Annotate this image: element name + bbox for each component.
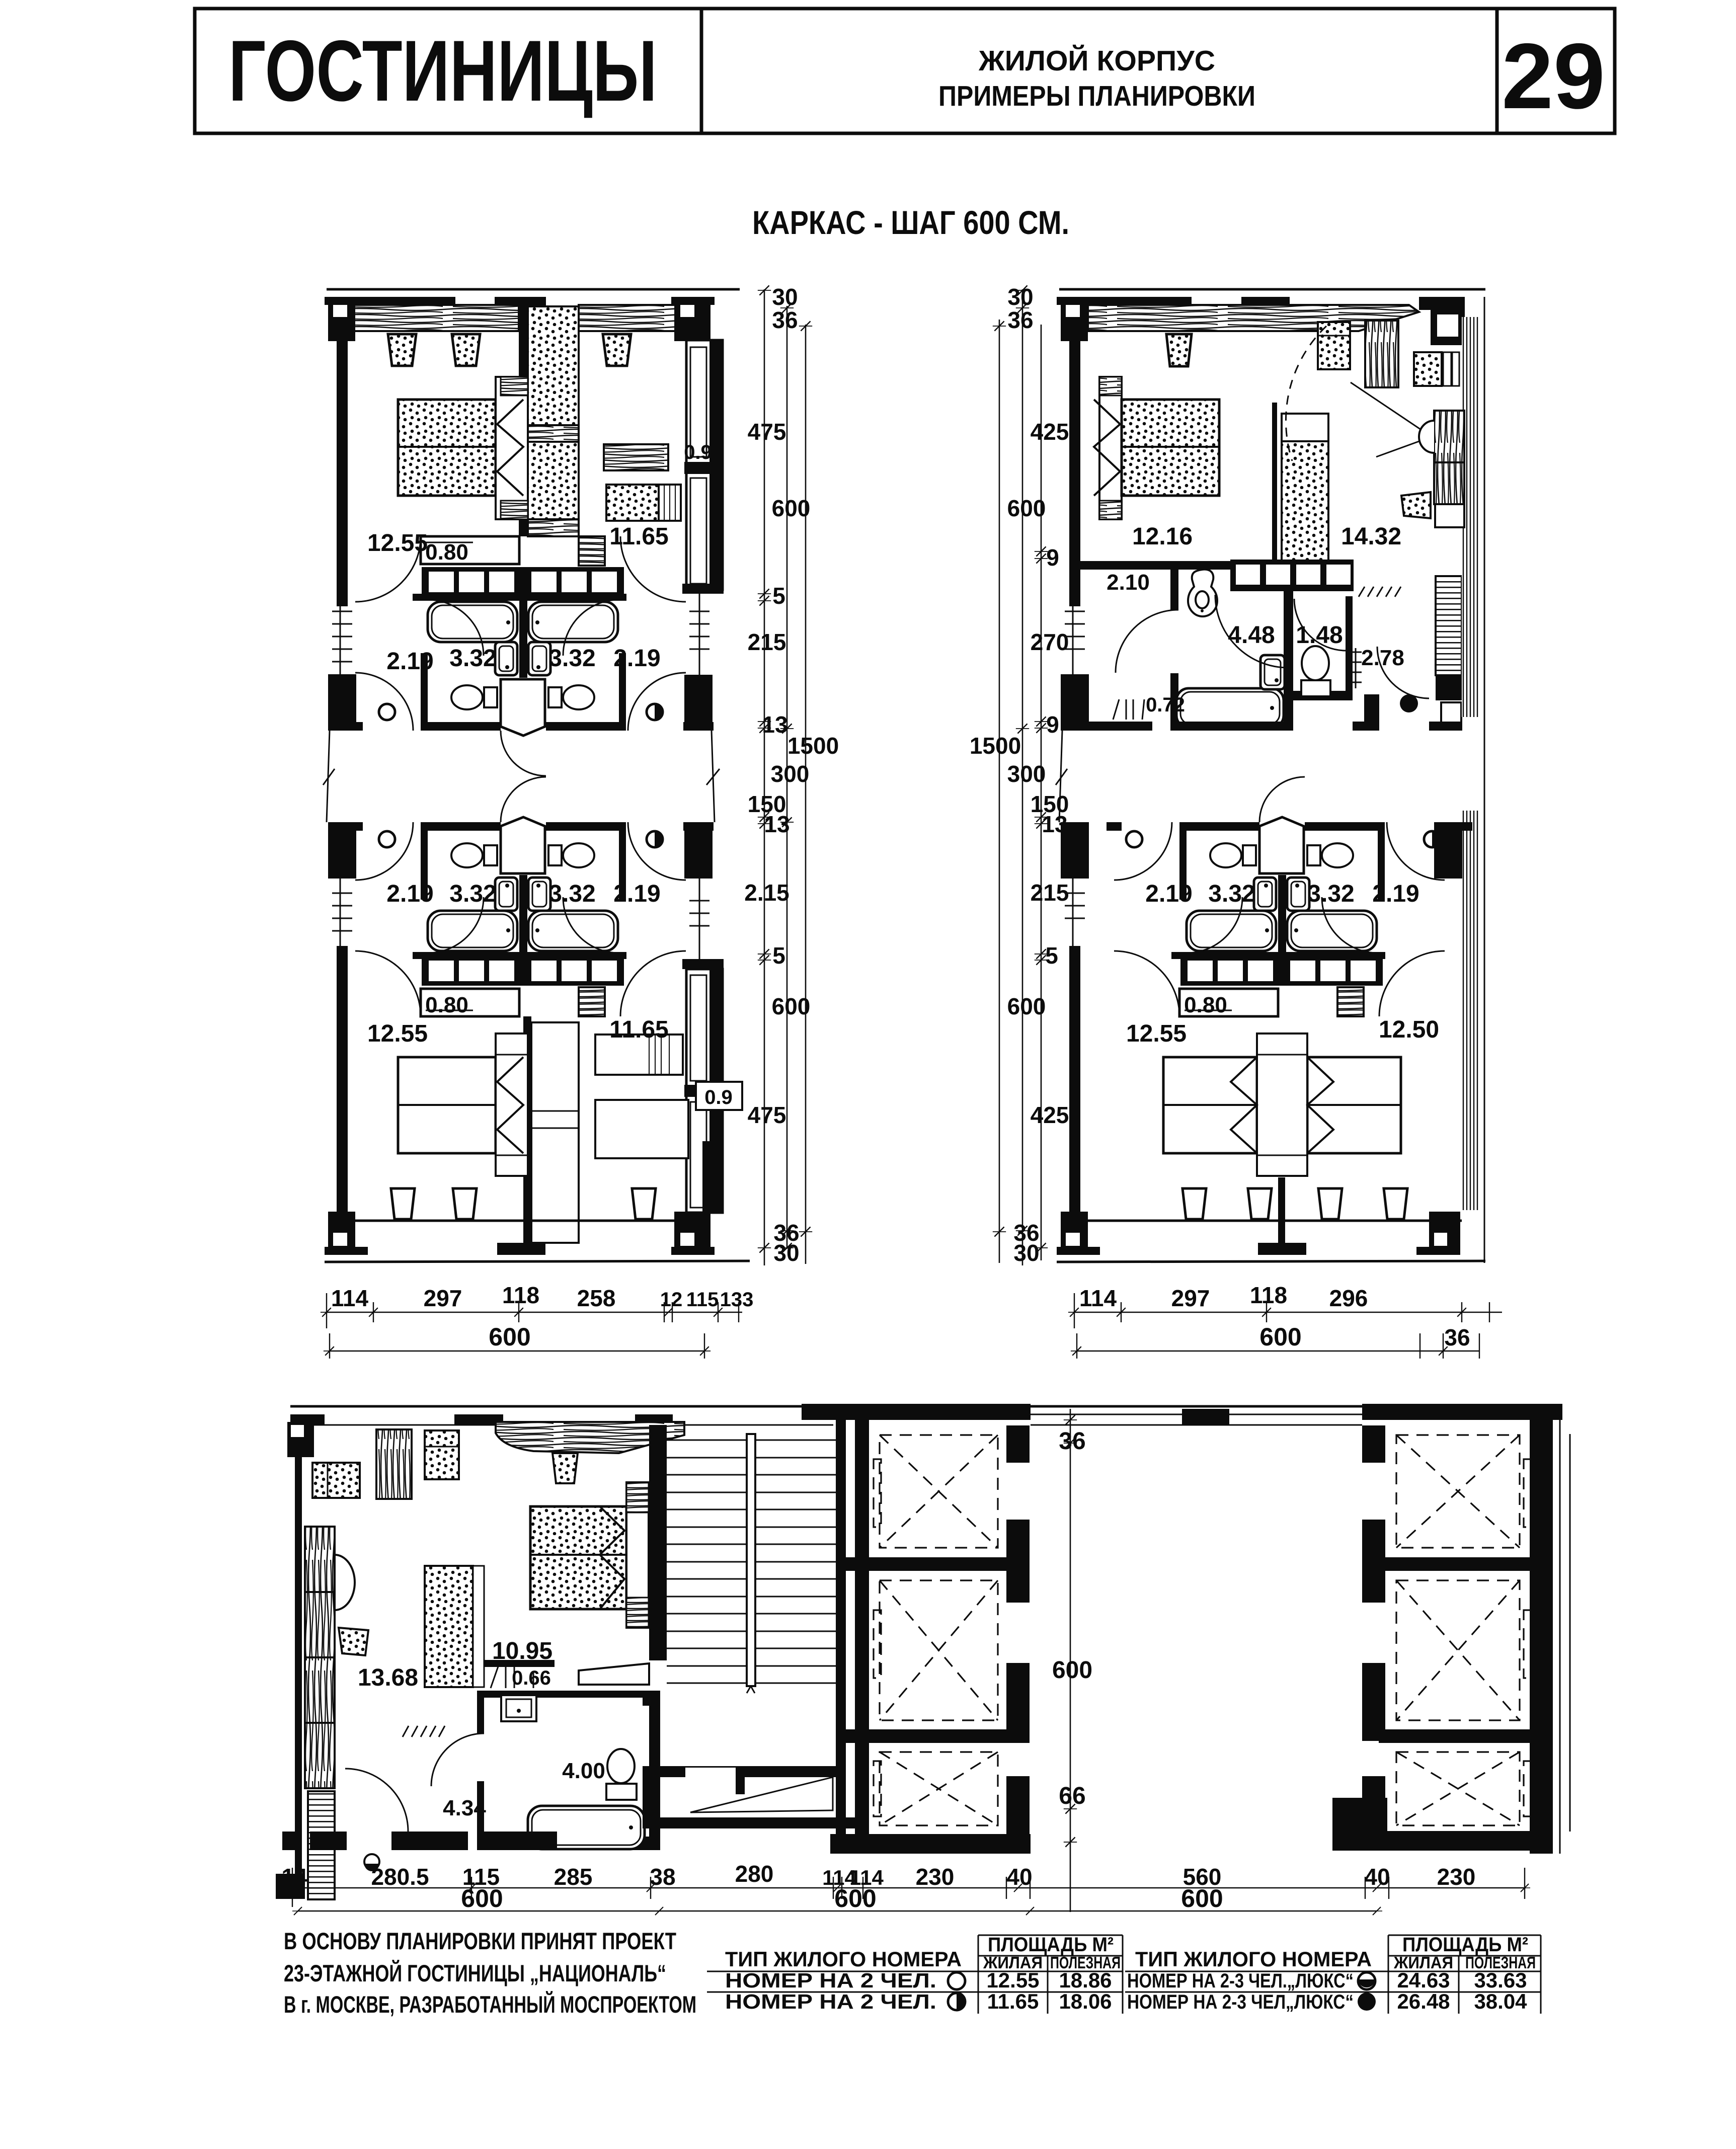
svg-text:2.78: 2.78 [1361,646,1404,670]
svg-text:ГОСТИНИЦЫ: ГОСТИНИЦЫ [228,23,657,119]
svg-text:38.04: 38.04 [1474,1989,1527,2013]
svg-text:297: 297 [424,1285,462,1311]
svg-text:ПРИМЕРЫ ПЛАНИРОВКИ: ПРИМЕРЫ ПЛАНИРОВКИ [938,80,1255,112]
svg-text:5: 5 [772,583,785,609]
svg-text:ЖИЛОЙ КОРПУС: ЖИЛОЙ КОРПУС [978,44,1215,77]
svg-text:36: 36 [1007,307,1033,333]
svg-text:3.32: 3.32 [1208,881,1255,907]
svg-text:40: 40 [1364,1864,1390,1890]
svg-text:280.5: 280.5 [371,1864,429,1890]
svg-text:3.32: 3.32 [1307,881,1354,907]
svg-text:230: 230 [1437,1864,1476,1890]
svg-text:36: 36 [772,307,798,333]
svg-text:0.9: 0.9 [684,441,712,463]
svg-text:600: 600 [489,1323,530,1351]
svg-text:600: 600 [772,993,811,1019]
svg-text:297: 297 [1171,1285,1210,1311]
svg-text:4.48: 4.48 [1228,622,1275,649]
svg-text:1500: 1500 [787,733,839,759]
svg-text:230: 230 [916,1864,955,1890]
svg-text:13.68: 13.68 [358,1664,418,1691]
svg-text:115: 115 [686,1289,719,1311]
svg-text:118: 118 [502,1282,539,1308]
svg-text:30: 30 [772,284,798,310]
svg-text:38: 38 [650,1864,675,1890]
svg-text:215: 215 [748,629,786,655]
svg-text:12.55: 12.55 [1126,1020,1187,1047]
svg-text:В г. МОСКВЕ, РАЗРАБОТАННЫЙ МОС: В г. МОСКВЕ, РАЗРАБОТАННЫЙ МОСПРОЕКТОМ [284,1991,696,2018]
svg-text:12.55: 12.55 [367,530,428,556]
svg-text:11.65: 11.65 [609,523,668,550]
svg-text:280: 280 [735,1861,774,1887]
svg-text:ПЛОЩАДЬ М²: ПЛОЩАДЬ М² [988,1934,1114,1956]
svg-text:118: 118 [1250,1282,1287,1308]
svg-text:2.10: 2.10 [1107,570,1150,595]
svg-text:1.48: 1.48 [1296,622,1343,649]
svg-text:36: 36 [1059,1428,1085,1455]
svg-text:2.19: 2.19 [613,881,660,907]
svg-text:26.48: 26.48 [1397,1989,1450,2013]
svg-text:475: 475 [748,1102,786,1128]
svg-text:3.32: 3.32 [548,881,595,907]
svg-text:425: 425 [1031,419,1069,445]
svg-text:5: 5 [1045,942,1058,969]
svg-text:3.32: 3.32 [449,645,496,672]
svg-text:12.55: 12.55 [367,1020,428,1047]
svg-text:0.9: 0.9 [704,1086,733,1108]
svg-text:215: 215 [1031,880,1069,906]
svg-text:66: 66 [1059,1783,1085,1809]
svg-text:30: 30 [1013,1240,1039,1266]
svg-text:18.06: 18.06 [1059,1989,1112,2013]
svg-text:30: 30 [1007,284,1033,310]
svg-text:40: 40 [1006,1864,1032,1890]
svg-text:600: 600 [834,1884,876,1913]
svg-text:0.80: 0.80 [425,540,468,565]
svg-text:4.00: 4.00 [562,1759,605,1783]
svg-text:12.55: 12.55 [986,1968,1039,1992]
svg-text:5: 5 [772,942,785,969]
svg-text:114: 114 [1079,1285,1117,1311]
svg-text:1500: 1500 [970,733,1021,759]
svg-text:285: 285 [554,1864,593,1890]
svg-text:12: 12 [660,1289,683,1311]
svg-text:36: 36 [1444,1324,1470,1350]
svg-text:18.86: 18.86 [1059,1968,1112,1992]
svg-text:13: 13 [762,711,787,738]
svg-text:2.19: 2.19 [386,881,433,907]
svg-text:29: 29 [1502,25,1605,128]
svg-text:2.15: 2.15 [744,880,790,906]
svg-text:114: 114 [331,1285,369,1311]
svg-text:600: 600 [772,495,811,521]
svg-text:14: 14 [281,1864,307,1890]
svg-text:В ОСНОВУ ПЛАНИРОВКИ ПРИНЯТ ПРО: В ОСНОВУ ПЛАНИРОВКИ ПРИНЯТ ПРОЕКТ [284,1928,676,1954]
svg-text:НОМЕР НА 2 ЧЕЛ.: НОМЕР НА 2 ЧЕЛ. [725,1990,936,2013]
svg-text:475: 475 [748,419,786,445]
svg-text:600: 600 [1052,1657,1092,1684]
svg-text:425: 425 [1031,1102,1069,1128]
svg-text:НОМЕР НА 2-3 ЧЕЛ„ЛЮКС“: НОМЕР НА 2-3 ЧЕЛ„ЛЮКС“ [1127,1991,1354,2013]
svg-text:ТИП ЖИЛОГО НОМЕРА: ТИП ЖИЛОГО НОМЕРА [725,1947,962,1971]
svg-text:0.66: 0.66 [512,1667,551,1689]
svg-text:14.32: 14.32 [1341,523,1401,550]
svg-text:296: 296 [1329,1285,1368,1311]
svg-text:ПЛОЩАДЬ М²: ПЛОЩАДЬ М² [1402,1934,1528,1956]
svg-text:12.50: 12.50 [1379,1016,1439,1043]
svg-text:0.72: 0.72 [1146,694,1185,716]
svg-text:12.16: 12.16 [1132,523,1193,550]
svg-text:2.19: 2.19 [1372,881,1419,907]
svg-text:23-ЭТАЖНОЙ ГОСТИНИЦЫ „НАЦИОНАЛ: 23-ЭТАЖНОЙ ГОСТИНИЦЫ „НАЦИОНАЛЬ“ [284,1960,666,1986]
svg-text:24.63: 24.63 [1397,1968,1450,1992]
svg-text:133: 133 [720,1289,754,1311]
svg-text:КАРКАС - ШАГ 600 СМ.: КАРКАС - ШАГ 600 СМ. [752,204,1069,241]
svg-text:600: 600 [1181,1884,1223,1913]
svg-text:258: 258 [577,1285,616,1311]
svg-text:13: 13 [764,811,790,837]
svg-text:9: 9 [1046,544,1059,571]
svg-text:4.34: 4.34 [443,1796,486,1820]
svg-text:270: 270 [1031,629,1069,655]
svg-text:30: 30 [773,1240,799,1266]
svg-text:3.32: 3.32 [449,881,496,907]
svg-text:11.65: 11.65 [609,1016,668,1043]
svg-text:300: 300 [771,761,810,787]
svg-text:2.19: 2.19 [613,645,660,672]
svg-text:300: 300 [1007,761,1046,787]
svg-text:600: 600 [461,1884,503,1913]
svg-text:0.80: 0.80 [425,993,468,1017]
svg-text:НОМЕР НА 2 ЧЕЛ.: НОМЕР НА 2 ЧЕЛ. [725,1969,936,1992]
svg-text:0.80: 0.80 [1184,993,1227,1017]
svg-text:ТИП ЖИЛОГО НОМЕРА: ТИП ЖИЛОГО НОМЕРА [1135,1947,1372,1971]
svg-text:33.63: 33.63 [1474,1968,1527,1992]
svg-text:2.19: 2.19 [386,648,433,675]
svg-text:2.19: 2.19 [1145,881,1192,907]
svg-text:600: 600 [1259,1323,1301,1351]
svg-text:600: 600 [1007,495,1046,521]
svg-text:600: 600 [1007,993,1046,1019]
svg-text:11.65: 11.65 [987,1989,1039,2013]
svg-text:НОМЕР НА 2-3 ЧЕЛ.„ЛЮКС“: НОМЕР НА 2-3 ЧЕЛ.„ЛЮКС“ [1127,1970,1354,1992]
svg-text:9: 9 [1046,711,1059,738]
svg-text:10.95: 10.95 [492,1638,553,1664]
svg-text:3.32: 3.32 [548,645,595,672]
